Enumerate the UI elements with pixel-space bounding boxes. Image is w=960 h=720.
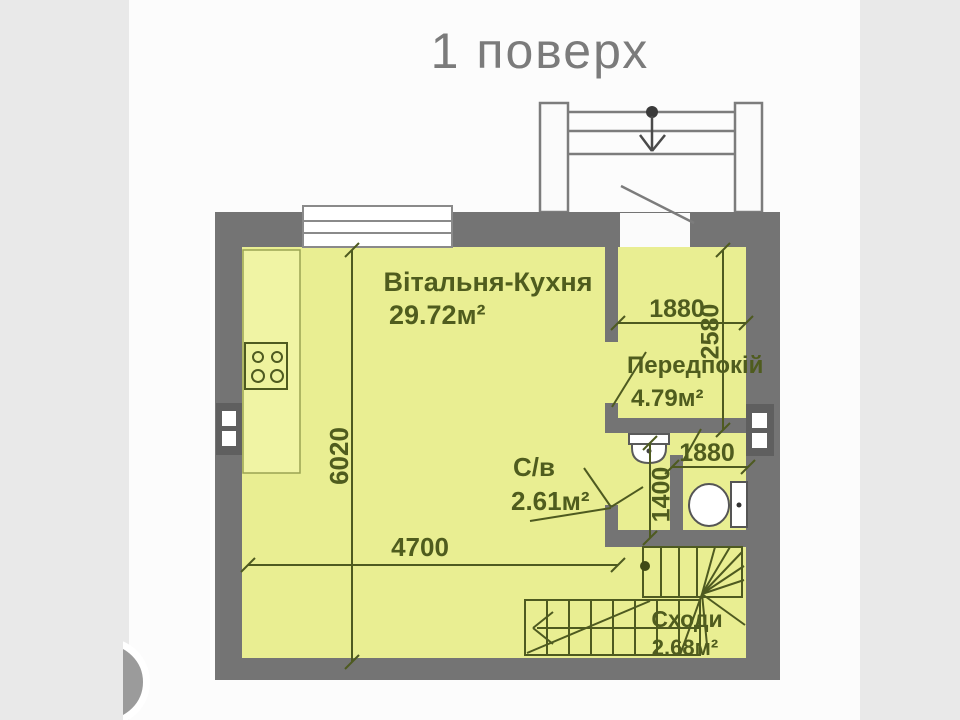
room-area-hallway: 4.79м² — [631, 387, 703, 411]
dim-living-depth: 6020 — [326, 416, 352, 496]
room-label-bathroom: С/в — [513, 454, 555, 480]
room-label-hallway: Передпокій — [627, 354, 763, 378]
nav-circle-icon — [123, 638, 150, 720]
room-label-living: Вітальня-Кухня — [368, 269, 608, 296]
screenshot-root: 1 поверх — [0, 0, 960, 720]
window — [303, 206, 452, 247]
room-area-bathroom: 2.61м² — [511, 488, 590, 514]
floor-plan-drawing — [0, 0, 960, 720]
dim-living-width: 4700 — [380, 534, 460, 560]
room-area-stairs: 2.68м² — [625, 637, 745, 659]
entry-door — [620, 186, 694, 247]
dim-wc-width: 1880 — [667, 441, 747, 466]
room-label-stairs: Сходи — [627, 608, 747, 631]
dim-hallway-depth: 2580 — [699, 292, 724, 372]
room-area-living: 29.72м² — [389, 302, 486, 329]
floor-title: 1 поверх — [350, 22, 730, 80]
carousel-nav-button[interactable] — [123, 636, 175, 720]
stove-icon — [245, 343, 287, 389]
wall-vent-right-icon — [746, 404, 774, 456]
toilet-icon — [689, 482, 747, 527]
kitchen-counter — [243, 250, 300, 473]
wall-vent-left-icon — [216, 403, 242, 455]
dim-wc-depth: 1400 — [650, 455, 675, 535]
